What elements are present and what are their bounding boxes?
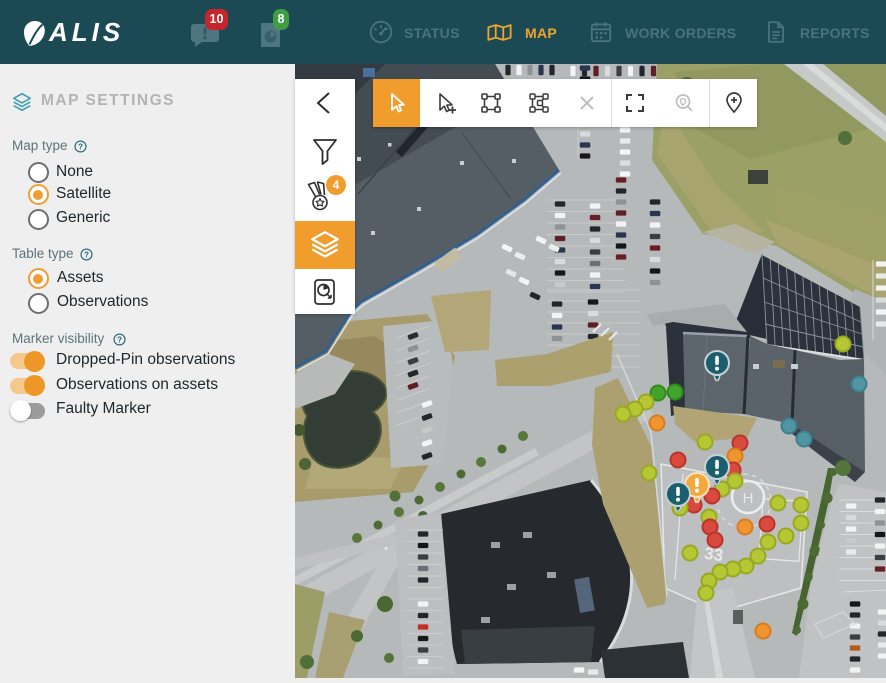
svg-text:H: H (743, 490, 754, 507)
svg-text:?: ? (117, 335, 122, 344)
svg-text:?: ? (78, 142, 83, 151)
svg-text:?: ? (84, 250, 89, 259)
